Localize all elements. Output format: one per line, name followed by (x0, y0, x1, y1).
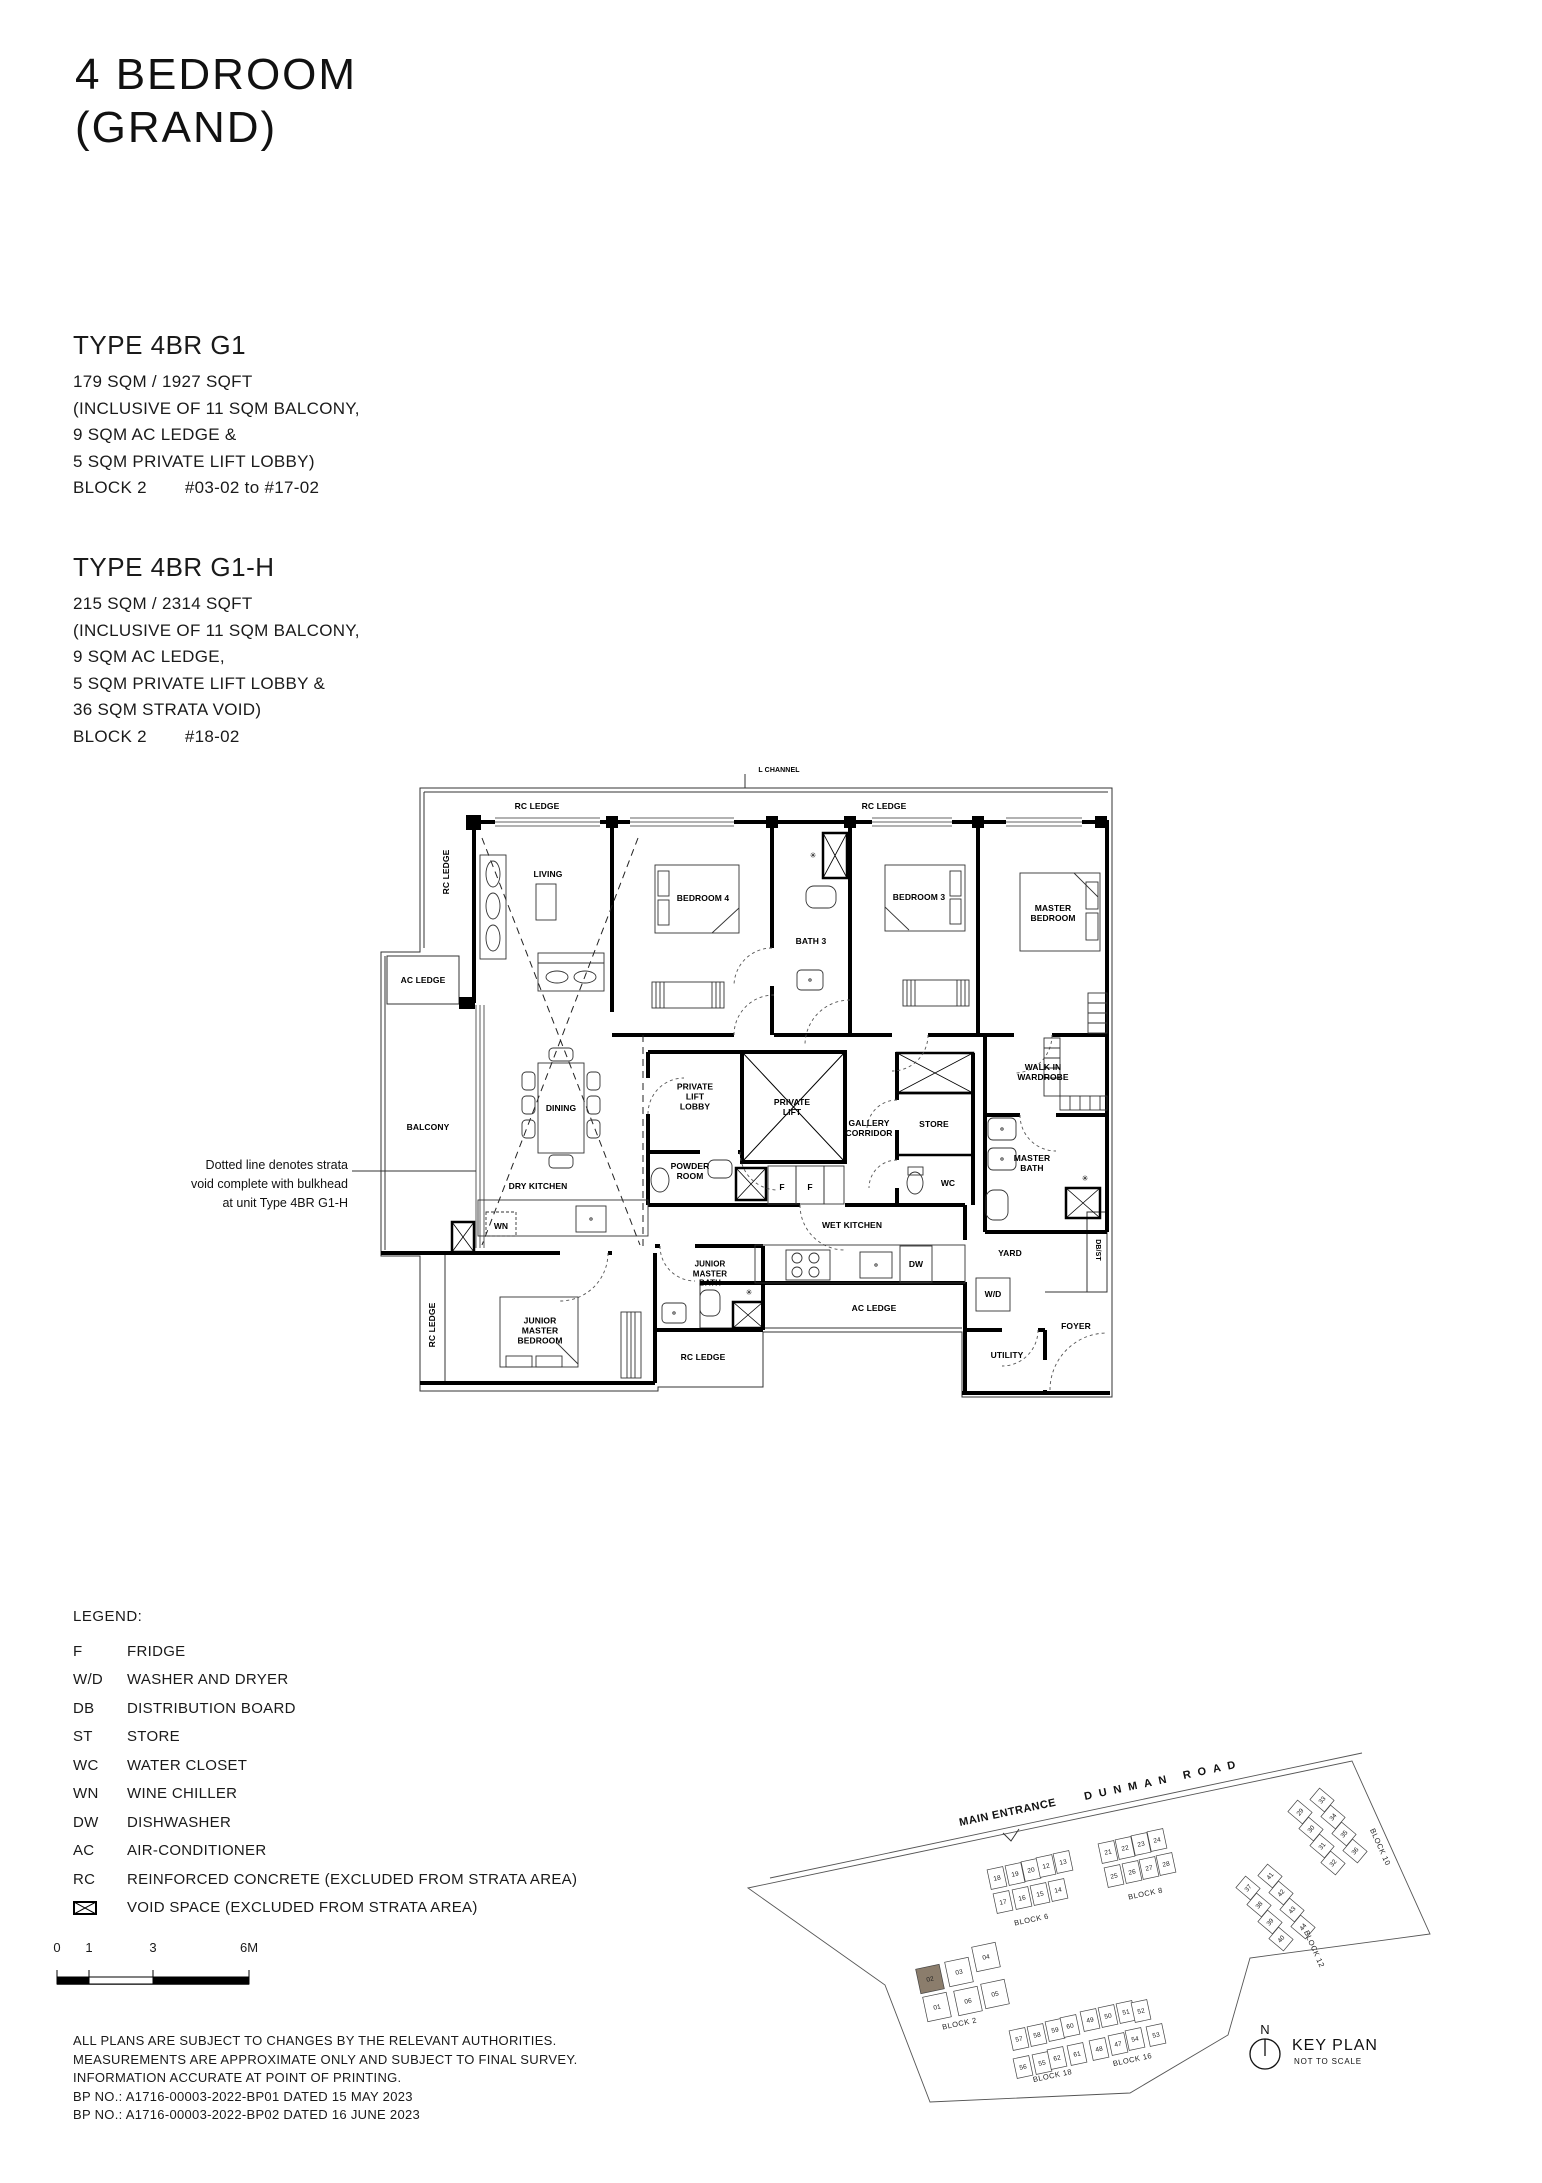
keyplan-unit: 53 (1146, 2024, 1166, 2047)
keyplan-unit: 15 (1030, 1883, 1050, 1906)
room-label: AC LEDGE (852, 1303, 897, 1313)
legend-row: WNWINE CHILLER (73, 1780, 633, 1809)
room-label: WN (494, 1221, 508, 1231)
scale-tick: 3 (149, 1940, 156, 1955)
scale-tick: 0 (53, 1940, 60, 1955)
room-label: JUNIOR MASTER BEDROOM (517, 1316, 562, 1347)
disclaimer-line: MEASUREMENTS ARE APPROXIMATE ONLY AND SU… (73, 2051, 633, 2070)
room-label: DRY KITCHEN (509, 1181, 568, 1191)
keyplan-unit: 25 (1104, 1865, 1124, 1888)
legend-desc: DISHWASHER (127, 1814, 231, 1831)
room-label: BEDROOM 4 (677, 893, 729, 903)
legend-abbr: DW (73, 1814, 127, 1831)
legend-row: RCREINFORCED CONCRETE (EXCLUDED FROM STR… (73, 1865, 633, 1894)
keyplan-subtitle: NOT TO SCALE (1294, 2057, 1362, 2066)
room-label: RC LEDGE (441, 850, 451, 895)
legend-abbr: W/D (73, 1671, 127, 1688)
legend-row: WCWATER CLOSET (73, 1751, 633, 1780)
room-label: BALCONY (407, 1122, 450, 1132)
void-space-icon (73, 1901, 127, 1915)
keyplan-title: KEY PLAN (1292, 2037, 1378, 2054)
room-label: STORE (919, 1119, 949, 1129)
room-label: ✳ (746, 1288, 753, 1298)
disclaimer-line: INFORMATION ACCURATE AT POINT OF PRINTIN… (73, 2069, 633, 2088)
keyplan-unit: 14 (1048, 1879, 1068, 1902)
room-label: L CHANNEL (758, 767, 799, 775)
keyplan-block-label: BLOCK 6 (1013, 1911, 1049, 1927)
keyplan-unit: 54 (1125, 2028, 1145, 2051)
room-label: W/D (985, 1289, 1002, 1299)
keyplan-unit: 16 (1012, 1887, 1032, 1910)
room-label: WET KITCHEN (822, 1220, 882, 1230)
room-label: LIVING (534, 869, 563, 879)
legend-abbr: ST (73, 1728, 127, 1745)
legend-abbr: AC (73, 1842, 127, 1859)
main-entrance-arrow (1003, 1829, 1019, 1841)
strata-void-note-line: Dotted line denotes strata (120, 1156, 348, 1175)
keyplan-block-label: BLOCK 8 (1127, 1885, 1163, 1901)
keyplan-unit: 48 (1089, 2038, 1109, 2061)
keyplan-unit: 03 (945, 1957, 974, 1986)
room-label: F (807, 1182, 812, 1192)
keyplan-unit: 04 (972, 1942, 1001, 1971)
room-label: DB/ST (1093, 1239, 1101, 1261)
scale-tick: 6M (240, 1940, 258, 1955)
keyplan-block-label: BLOCK 12 (1302, 1929, 1326, 1969)
keyplan-unit: 58 (1027, 2024, 1047, 2047)
room-label: RC LEDGE (862, 801, 907, 811)
legend-abbr: RC (73, 1871, 127, 1888)
room-label: POWDER ROOM (671, 1161, 710, 1181)
room-label: MASTER BATH (1014, 1153, 1051, 1173)
keyplan-unit: 06 (954, 1986, 983, 2015)
legend-row-void: VOID SPACE (EXCLUDED FROM STRATA AREA) (73, 1894, 633, 1923)
keyplan-unit: 17 (993, 1891, 1013, 1914)
room-label: ✳ (1082, 1174, 1089, 1184)
keyplan-unit: 61 (1067, 2043, 1087, 2066)
room-label: UTILITY (991, 1350, 1024, 1360)
legend-abbr: WN (73, 1785, 127, 1802)
legend-desc: REINFORCED CONCRETE (EXCLUDED FROM STRAT… (127, 1871, 577, 1888)
keyplan-unit: 50 (1098, 2005, 1118, 2028)
room-label: DINING (546, 1103, 576, 1113)
main-entrance-label: MAIN ENTRANCE (958, 1797, 1057, 1829)
room-label: PRIVATE LIFT LOBBY (677, 1082, 713, 1113)
brochure-page: 4 BEDROOM (GRAND) TYPE 4BR G1 179 SQM / … (0, 0, 1542, 2183)
legend-desc: STORE (127, 1728, 180, 1745)
room-label: F (779, 1182, 784, 1192)
legend-row: DWDISHWASHER (73, 1808, 633, 1837)
legend-row: STSTORE (73, 1723, 633, 1752)
keyplan-unit: 26 (1122, 1861, 1142, 1884)
keyplan-unit: 05 (981, 1979, 1010, 2008)
room-label: MASTER BEDROOM (1030, 903, 1075, 923)
room-label: BEDROOM 3 (893, 892, 945, 902)
strata-void-note: Dotted line denotes strata void complete… (120, 1156, 348, 1213)
keyplan-unit: 28 (1156, 1853, 1176, 1876)
room-label: AC LEDGE (401, 975, 446, 985)
keyplan-unit: 02 (916, 1964, 945, 1993)
legend: LEGEND: FFRIDGE W/DWASHER AND DRYER DBDI… (73, 1608, 633, 1922)
keyplan-unit: 27 (1139, 1857, 1159, 1880)
scale-tick: 1 (85, 1940, 92, 1955)
disclaimer-line: BP NO.: A1716-00003-2022-BP01 DATED 15 M… (73, 2088, 633, 2107)
legend-abbr: DB (73, 1700, 127, 1717)
room-label: JUNIOR MASTER BATH (693, 1260, 727, 1289)
north-compass (1250, 2039, 1280, 2069)
north-label: N (1260, 2022, 1269, 2037)
keyplan-unit: 21 (1098, 1841, 1118, 1864)
room-label: PRIVATE LIFT (774, 1097, 810, 1117)
legend-desc: VOID SPACE (EXCLUDED FROM STRATA AREA) (127, 1899, 478, 1916)
legend-abbr: F (73, 1643, 127, 1660)
scale-bar: 0 1 3 6M (57, 1940, 317, 1990)
keyplan-unit: 57 (1009, 2028, 1029, 2051)
strata-void-note-line: at unit Type 4BR G1-H (120, 1194, 348, 1213)
room-label: GALLERY CORRIDOR (845, 1118, 892, 1138)
legend-row: FFRIDGE (73, 1637, 633, 1666)
room-label: FOYER (1061, 1321, 1091, 1331)
room-label: WALK IN WARDROBE (1017, 1062, 1068, 1082)
disclaimer-line: BP NO.: A1716-00003-2022-BP02 DATED 16 J… (73, 2106, 633, 2125)
legend-desc: WATER CLOSET (127, 1757, 247, 1774)
legend-desc: FRIDGE (127, 1643, 185, 1660)
room-label: YARD (998, 1248, 1022, 1258)
room-label: ✳ (810, 851, 817, 861)
walls (381, 820, 1110, 1395)
room-label: DW (909, 1259, 923, 1269)
keyplan-unit: 01 (923, 1992, 952, 2021)
keyplan-unit: 47 (1108, 2033, 1128, 2056)
room-label: RC LEDGE (681, 1352, 726, 1362)
legend-desc: WINE CHILLER (127, 1785, 237, 1802)
room-label: RC LEDGE (515, 801, 560, 811)
legend-row: ACAIR-CONDITIONER (73, 1837, 633, 1866)
legend-desc: WASHER AND DRYER (127, 1671, 289, 1688)
keyplan: MAIN ENTRANCE DUNMAN ROAD 18192012131716… (748, 1753, 1430, 2102)
legend-title: LEGEND: (73, 1608, 633, 1625)
keyplan-unit: 13 (1053, 1851, 1073, 1874)
room-label: WC (941, 1178, 955, 1188)
keyplan-unit: 56 (1013, 2056, 1033, 2079)
legend-desc: AIR-CONDITIONER (127, 1842, 267, 1859)
disclaimer: ALL PLANS ARE SUBJECT TO CHANGES BY THE … (73, 2032, 633, 2125)
legend-row: W/DWASHER AND DRYER (73, 1666, 633, 1695)
disclaimer-line: ALL PLANS ARE SUBJECT TO CHANGES BY THE … (73, 2032, 633, 2051)
keyplan-block-label: BLOCK 10 (1368, 1827, 1392, 1867)
room-label: BATH 3 (796, 936, 827, 946)
keyplan-unit: 49 (1080, 2009, 1100, 2032)
legend-abbr: WC (73, 1757, 127, 1774)
legend-row: DBDISTRIBUTION BOARD (73, 1694, 633, 1723)
room-label: RC LEDGE (427, 1303, 437, 1348)
road-name-label: DUNMAN ROAD (1083, 1758, 1243, 1803)
strata-void-note-line: void complete with bulkhead (120, 1175, 348, 1194)
legend-desc: DISTRIBUTION BOARD (127, 1700, 296, 1717)
keyplan-unit: 18 (987, 1867, 1007, 1890)
